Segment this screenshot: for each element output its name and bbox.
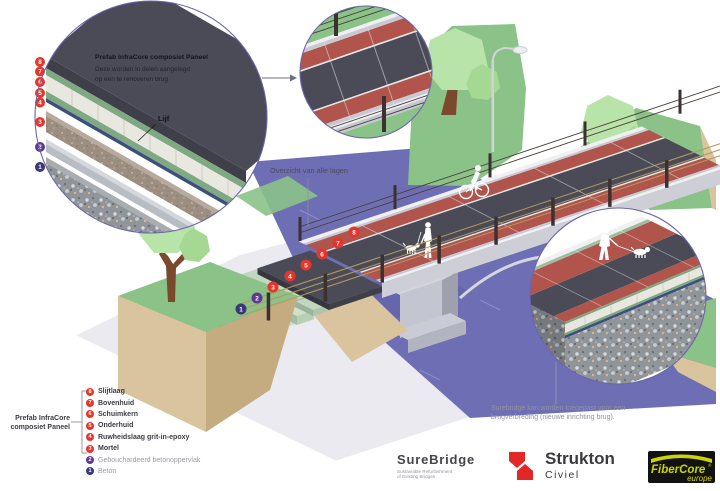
layer-badge-3: 3 xyxy=(268,282,279,293)
widening-note-line1: Surebridge kan worden toegepast voor een xyxy=(491,405,701,414)
svg-text:3: 3 xyxy=(271,284,275,291)
widening-note: Surebridge kan worden toegepast voor een… xyxy=(491,405,701,422)
panel-callout-desc2: op een te renoveren brug xyxy=(95,76,168,83)
callout-connector-arrow xyxy=(262,75,297,82)
svg-text:4: 4 xyxy=(38,100,42,107)
panel-callout-desc1: Deze worden in delen aangelegd xyxy=(95,66,190,73)
callout-badge-8: 8 xyxy=(35,57,45,67)
legend-badge-2: 2 xyxy=(86,456,94,464)
layer-badge-8: 8 xyxy=(349,227,360,238)
legend-badge-4: 4 xyxy=(86,433,94,441)
layer-badge-1: 1 xyxy=(236,304,247,315)
svg-text:1: 1 xyxy=(239,306,243,313)
fibercore-region: europe xyxy=(687,474,712,483)
layer-badge-4: 4 xyxy=(285,271,296,282)
layer-badge-5: 5 xyxy=(301,260,312,271)
legend-badge-1: 1 xyxy=(86,467,94,475)
fibercore-logo: FiberCore ® europe xyxy=(648,451,715,483)
surebridge-tagline: Sustainable Refurbishment of Existing Br… xyxy=(397,469,475,480)
surebridge-logo: SureBridge Sustainable Refurbishment of … xyxy=(397,452,475,480)
svg-text:7: 7 xyxy=(38,69,42,76)
strukton-division: Civiel xyxy=(545,469,615,481)
surebridge-wordmark: SureBridge xyxy=(397,452,475,467)
svg-text:7: 7 xyxy=(336,240,340,247)
legend-item-onderhuid: 5Onderhuid xyxy=(86,420,200,431)
svg-text:3: 3 xyxy=(38,119,42,126)
strukton-icon xyxy=(506,450,536,482)
legend-item-betonoppervlak: 2Gebouchardeerd betonoppervlak xyxy=(86,454,200,465)
svg-text:4: 4 xyxy=(288,273,292,280)
legend-item-slijtlaag: 8Slijtlaag xyxy=(86,386,200,397)
web-label: Lijf xyxy=(158,114,170,123)
layer-badge-6: 6 xyxy=(317,249,328,260)
panel-callout-title: Prefab InfraCore composiet Paneel xyxy=(95,54,208,61)
overview-label: Overzicht van alle lagen xyxy=(270,166,348,175)
svg-text:5: 5 xyxy=(304,262,308,269)
legend-badge-3: 3 xyxy=(86,445,94,453)
legend-item-bovenhuid: 7Bovenhuid xyxy=(86,397,200,408)
legend-item-mortel: 3Mortel xyxy=(86,443,200,454)
legend-badge-8: 8 xyxy=(86,388,94,396)
callout-badge-3: 3 xyxy=(35,117,45,127)
svg-text:2: 2 xyxy=(255,295,259,302)
strukton-wordmark: Strukton xyxy=(545,450,615,467)
svg-text:1: 1 xyxy=(38,164,42,171)
fibercore-reg-mark: ® xyxy=(708,462,712,468)
legend-badge-5: 5 xyxy=(86,422,94,430)
strukton-logo: Strukton Civiel xyxy=(506,450,615,482)
legend-item-beton: 1Beton xyxy=(86,466,200,477)
svg-text:5: 5 xyxy=(38,90,42,97)
widening-note-line2: brugverbreding (nieuwe inrichting brug). xyxy=(491,414,701,423)
infographic-canvas: Overzicht van alle lagen 1 2 3 4 5 6 7 8 xyxy=(0,0,720,491)
svg-text:6: 6 xyxy=(320,251,324,258)
layer-badge-2: 2 xyxy=(252,293,263,304)
layer-badge-7: 7 xyxy=(333,238,344,249)
legend-badge-7: 7 xyxy=(86,399,94,407)
legend-item-ruwheidslaag: 4Ruwheidslaag grit-in-epoxy xyxy=(86,432,200,443)
callout-badge-7: 7 xyxy=(35,67,45,77)
legend-badge-6: 6 xyxy=(86,410,94,418)
fibercore-swoosh xyxy=(651,455,712,464)
svg-text:8: 8 xyxy=(352,229,356,236)
callout-badge-1: 1 xyxy=(35,162,45,172)
legend-item-schuimkern: 6Schuimkern xyxy=(86,409,200,420)
layer-legend: Prefab InfraCore composiet Paneel 8Slijt… xyxy=(0,384,250,489)
svg-text:8: 8 xyxy=(38,59,42,66)
